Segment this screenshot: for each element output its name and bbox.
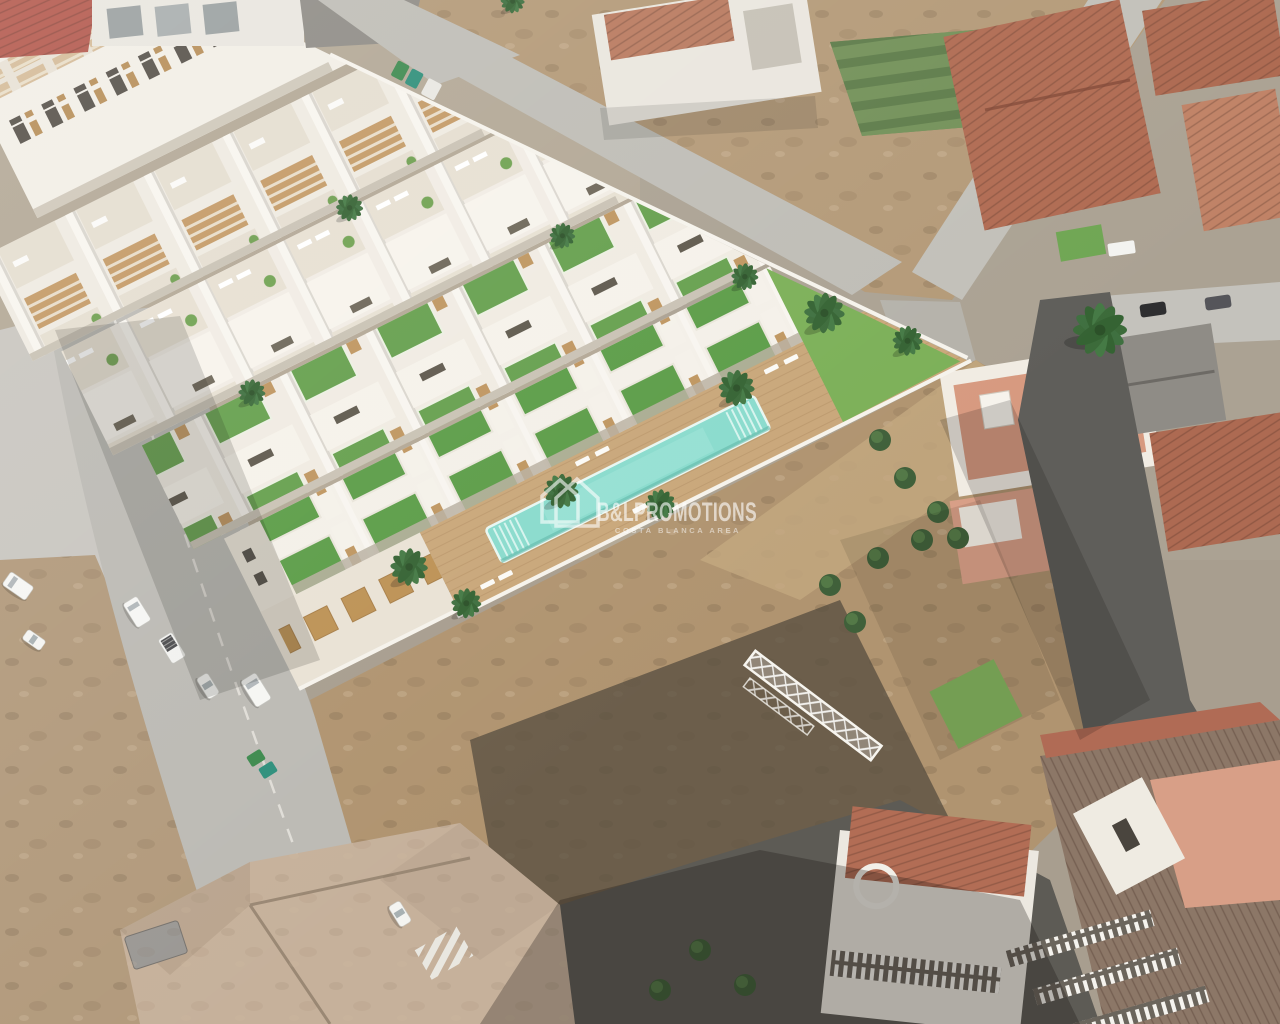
watermark-tagline: COSTA BLANCA AREA — [615, 526, 741, 535]
watermark-title: B&LPROMOTIONS — [597, 497, 757, 527]
aerial-development-render: B&LPROMOTIONS COSTA BLANCA AREA — [0, 0, 1280, 1024]
scene-canvas: B&LPROMOTIONS COSTA BLANCA AREA — [0, 0, 1280, 1024]
